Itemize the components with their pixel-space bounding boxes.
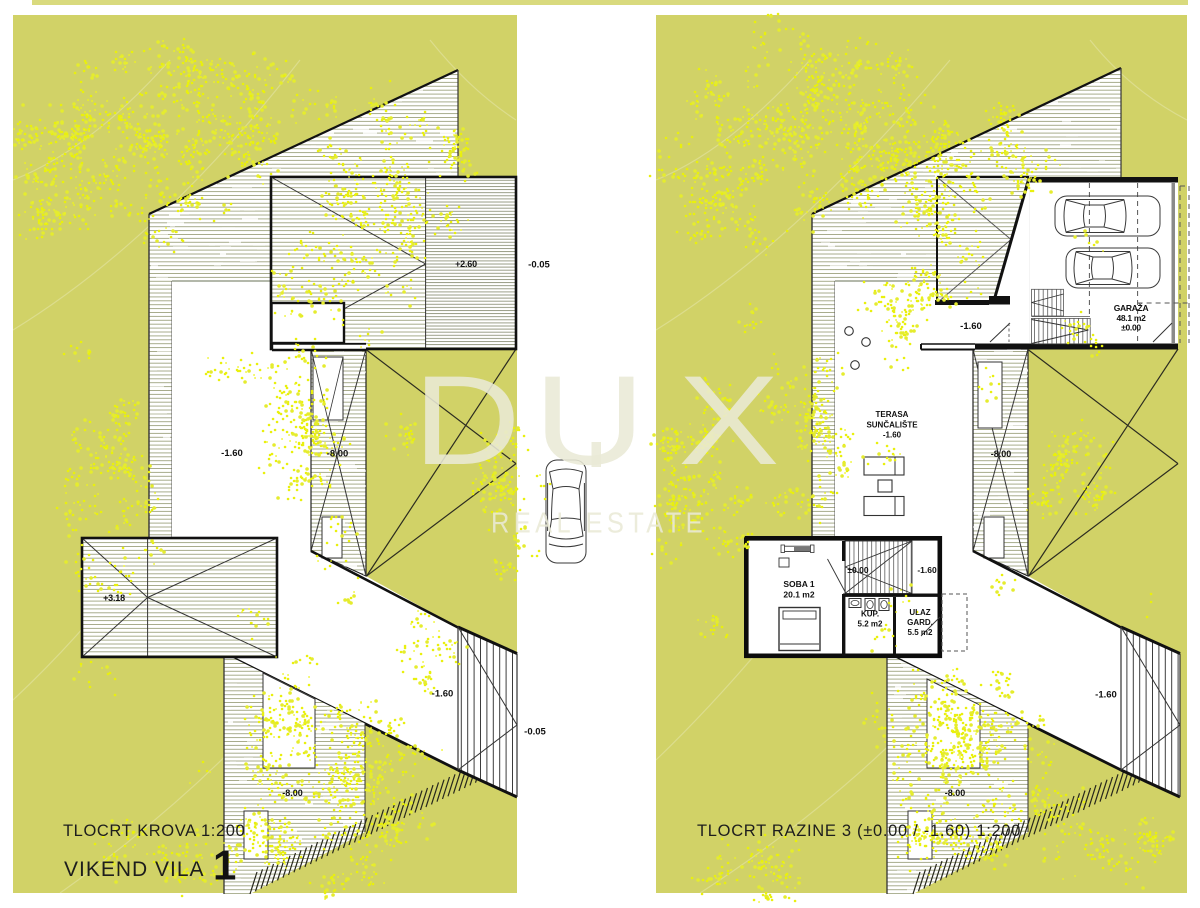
svg-text:-1.60: -1.60 [221,448,243,459]
svg-text:20.1 m2: 20.1 m2 [783,590,814,600]
svg-text:1: 1 [213,842,236,889]
svg-text:GARD.: GARD. [907,618,933,627]
svg-text:-1.60: -1.60 [917,565,937,575]
svg-text:-8.00: -8.00 [327,449,349,460]
svg-text:-0.05: -0.05 [524,727,546,738]
svg-text:±0.00: ±0.00 [1121,323,1141,333]
svg-text:ULAZ: ULAZ [909,608,930,617]
svg-text:-8.00: -8.00 [991,449,1012,459]
svg-text:+2.60: +2.60 [455,259,477,269]
svg-text:SUNČALIŠTE: SUNČALIŠTE [866,421,918,430]
svg-text:TLOCRT KROVA 1:200: TLOCRT KROVA 1:200 [63,822,245,840]
svg-text:-8.00: -8.00 [282,788,303,798]
svg-text:48.1 m2: 48.1 m2 [1116,313,1146,323]
svg-text:-8.00: -8.00 [945,788,966,798]
svg-text:TERASA: TERASA [876,410,909,419]
svg-text:-1.60: -1.60 [883,431,902,440]
svg-text:GARAŽA: GARAŽA [1114,302,1149,313]
svg-text:U: U [533,349,645,491]
svg-text:-0.05: -0.05 [528,260,550,271]
svg-text:KUP.: KUP. [861,610,879,619]
svg-text:D: D [413,349,521,491]
svg-text:-1.60: -1.60 [432,689,454,700]
svg-text:-1.60: -1.60 [960,321,982,332]
svg-text:TLOCRT RAZINE 3 (±0.00 / -1.60: TLOCRT RAZINE 3 (±0.00 / -1.60) 1:200 [697,822,1021,840]
svg-text:+3.18: +3.18 [103,593,125,603]
svg-text:5.5 m2: 5.5 m2 [908,628,933,637]
svg-text:SOBA 1: SOBA 1 [783,579,815,589]
svg-text:VIKEND VILA: VIKEND VILA [64,858,205,881]
svg-text:5.2 m2: 5.2 m2 [858,620,883,629]
svg-text:-1.60: -1.60 [1095,690,1117,701]
svg-text:X: X [678,349,780,491]
svg-text:±0.00: ±0.00 [847,565,868,575]
svg-text:REAL ESTATE: REAL ESTATE [491,508,707,540]
